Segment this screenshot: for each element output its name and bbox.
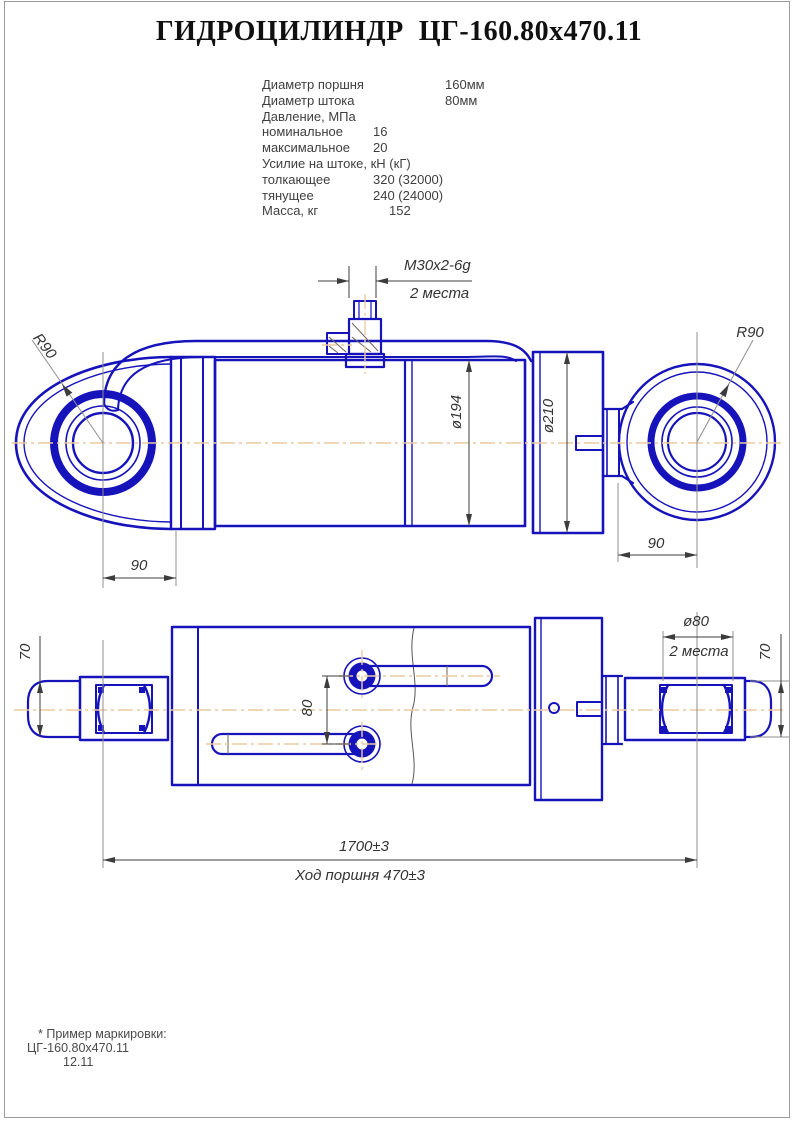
dim-eye-width-left-label: 70 — [17, 643, 34, 660]
dim-eye-offset-right-label: 90 — [648, 535, 665, 552]
dim-eye-width-right-label: 70 — [757, 643, 774, 660]
dim-port-spacing-label: 80 — [299, 699, 316, 716]
marking-note-model: ЦГ-160.80x470.11 — [27, 1041, 129, 1055]
dim-stroke-note-label: Ход поршня 470±3 — [294, 867, 426, 884]
dim-dia-body-label: ø194 — [448, 395, 465, 429]
plan-view — [28, 618, 771, 800]
technical-drawing: M30x2-6g 2 места R90 R90 ø194 ø210 90 90 — [0, 0, 798, 1127]
dim-radius-right-label: R90 — [736, 324, 764, 341]
dim-pin-dia-label: ø80 — [683, 613, 710, 630]
dim-radius-left-label: R90 — [29, 330, 60, 363]
dim-thread-label: M30x2-6g — [404, 257, 471, 274]
drawing-sheet: ГИДРОЦИЛИНДР ЦГ-160.80x470.11 Диаметр по… — [0, 0, 798, 1127]
dimension-annotations: M30x2-6g 2 места R90 R90 ø194 ø210 90 90 — [17, 257, 789, 884]
dim-thread-note-label: 2 места — [409, 285, 469, 302]
marking-note-date: 12.11 — [63, 1055, 93, 1069]
marking-note-title: * Пример маркировки: — [38, 1027, 167, 1041]
dim-dia-head-label: ø210 — [540, 398, 557, 433]
dim-pin-dia-note-label: 2 места — [668, 643, 728, 660]
dim-overall-length-label: 1700±3 — [339, 838, 390, 855]
dim-eye-offset-left-label: 90 — [131, 557, 148, 574]
side-view — [16, 301, 775, 533]
